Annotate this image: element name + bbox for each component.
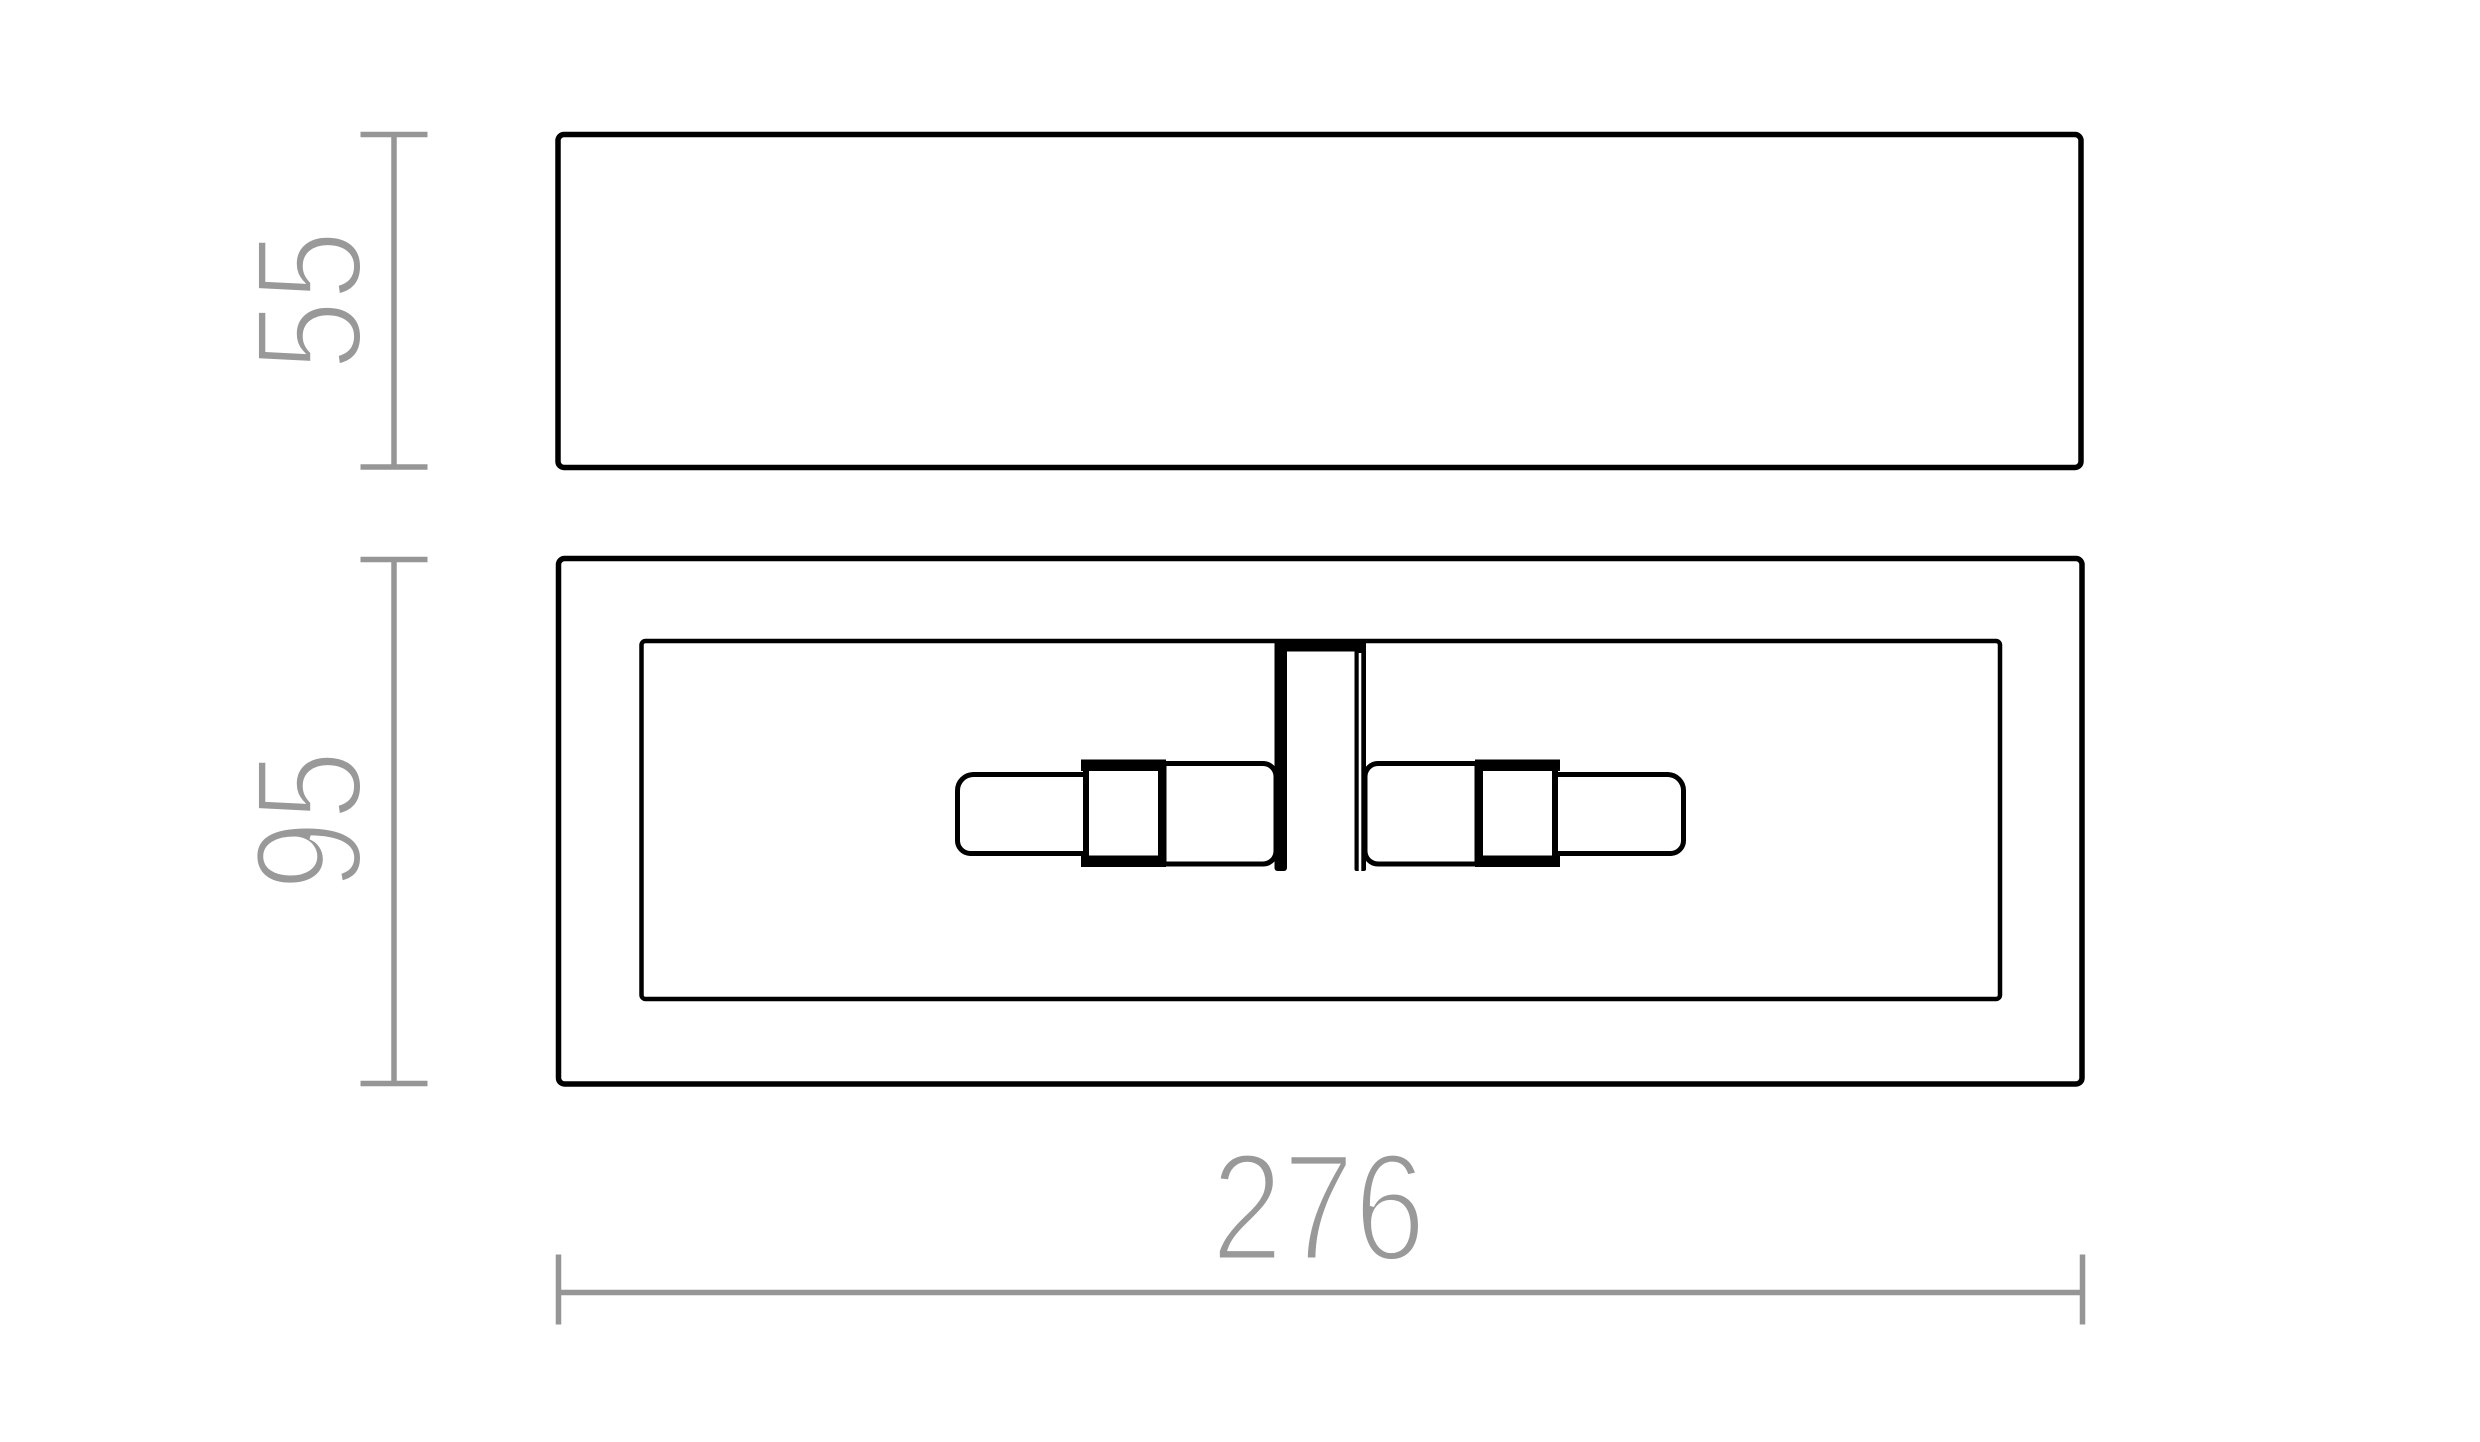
svg-text:95: 95 — [224, 750, 394, 890]
svg-text:276: 276 — [1211, 1121, 1425, 1292]
svg-text:55: 55 — [224, 230, 394, 370]
